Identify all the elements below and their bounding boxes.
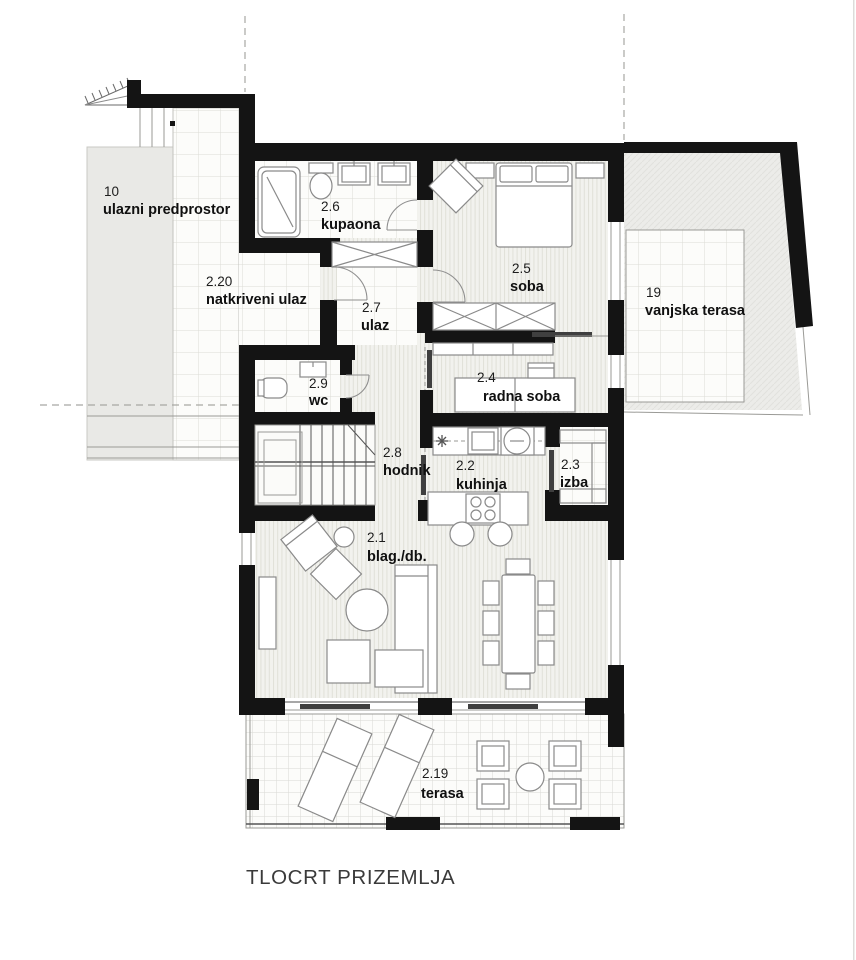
coffee-table xyxy=(327,640,370,683)
label-terasa-number: 2.19 xyxy=(422,766,448,781)
side-table xyxy=(334,527,354,547)
sink xyxy=(378,161,410,185)
label-soba-name: soba xyxy=(510,279,545,295)
nightstand xyxy=(576,163,604,178)
terrace-chair xyxy=(477,741,509,771)
label-kupaona-number: 2.6 xyxy=(321,199,340,214)
label-blag-db-name: blag./db. xyxy=(367,549,427,565)
bar-stool xyxy=(488,522,512,546)
window-living xyxy=(608,560,624,665)
dining-chair xyxy=(538,611,554,635)
label-vanjska-terasa-number: 19 xyxy=(646,285,661,300)
label-kuhinja-number: 2.2 xyxy=(456,458,475,473)
floor-plan-canvas: 10 ulazni predprostor 2.20 natkriveni ul… xyxy=(0,0,856,960)
terrace-edge xyxy=(803,327,810,415)
plan-title: TLOCRT PRIZEMLJA xyxy=(246,866,455,889)
dining-chair xyxy=(538,581,554,605)
oven xyxy=(468,428,498,454)
floor-plan-drawing: 10 ulazni predprostor 2.20 natkriveni ul… xyxy=(0,0,856,960)
room-vanjska-terasa xyxy=(624,153,810,415)
room-ulaz-furniture xyxy=(332,242,417,267)
label-kupaona-name: kupaona xyxy=(321,217,382,233)
terrace-post xyxy=(386,817,440,830)
dining-chair xyxy=(483,611,499,635)
sink xyxy=(338,161,370,185)
label-ulazni-predprostor-name: ulazni predprostor xyxy=(103,202,231,218)
terrace-table xyxy=(516,763,544,791)
post-dot xyxy=(170,121,175,126)
forecourt-area xyxy=(87,147,173,460)
label-ulaz-number: 2.7 xyxy=(362,300,381,315)
label-wc-name: wc xyxy=(308,393,328,409)
label-natkriveni-ulaz-name: natkriveni ulaz xyxy=(206,292,307,308)
kitchen-sink xyxy=(501,427,534,455)
small-sink xyxy=(300,362,326,377)
label-vanjska-terasa-name: vanjska terasa xyxy=(645,303,746,319)
label-soba-number: 2.5 xyxy=(512,261,531,276)
kitchen-counter xyxy=(433,427,545,455)
terrace-chair xyxy=(549,741,581,771)
label-izba-name: izba xyxy=(560,475,589,491)
label-blag-db-number: 2.1 xyxy=(367,530,386,545)
toilet xyxy=(258,378,287,398)
label-radna-soba-name: radna soba xyxy=(483,389,561,405)
window-living-left xyxy=(239,533,255,565)
window-soba xyxy=(608,222,624,300)
terrace-edge xyxy=(624,412,803,415)
terrace-post xyxy=(247,779,259,810)
sliding-glass-door-left xyxy=(285,702,418,710)
scan-edge xyxy=(853,0,855,960)
label-izba-number: 2.3 xyxy=(561,457,580,472)
sliding-glass-door-right xyxy=(452,702,585,710)
label-hodnik-name: hodnik xyxy=(383,463,431,479)
dining-chair xyxy=(538,641,554,665)
label-kuhinja-name: kuhinja xyxy=(456,477,508,493)
label-terasa-name: terasa xyxy=(421,786,465,802)
desk-chair xyxy=(528,363,554,378)
toilet xyxy=(309,163,333,199)
kitchen-island xyxy=(428,492,528,525)
bar-stool xyxy=(450,522,474,546)
window-radna-soba xyxy=(608,355,624,388)
terrace-chair xyxy=(549,779,581,809)
sofa-chaise xyxy=(375,650,423,687)
label-wc-number: 2.9 xyxy=(309,376,328,391)
label-radna-soba-number: 2.4 xyxy=(477,370,496,385)
dining-chair xyxy=(483,581,499,605)
label-hodnik-number: 2.8 xyxy=(383,445,402,460)
stair-floor xyxy=(255,425,375,505)
terrace-chair xyxy=(477,779,509,809)
sliding-door-izba xyxy=(549,450,554,492)
dining-chair xyxy=(506,674,530,689)
label-ulazni-predprostor-number: 10 xyxy=(104,184,119,199)
label-natkriveni-ulaz-number: 2.20 xyxy=(206,274,232,289)
wall-shelf xyxy=(433,343,553,355)
wardrobe xyxy=(433,303,555,330)
wardrobe xyxy=(332,242,417,267)
bed xyxy=(496,163,572,247)
dining-chair xyxy=(483,641,499,665)
label-ulaz-name: ulaz xyxy=(361,318,389,334)
terrace-post xyxy=(570,817,620,830)
wall-shelf xyxy=(259,577,276,649)
top-wall xyxy=(239,143,624,161)
bathtub xyxy=(258,167,300,237)
round-rug xyxy=(346,589,388,631)
dining-chair xyxy=(506,559,530,574)
dining-table xyxy=(502,575,535,673)
